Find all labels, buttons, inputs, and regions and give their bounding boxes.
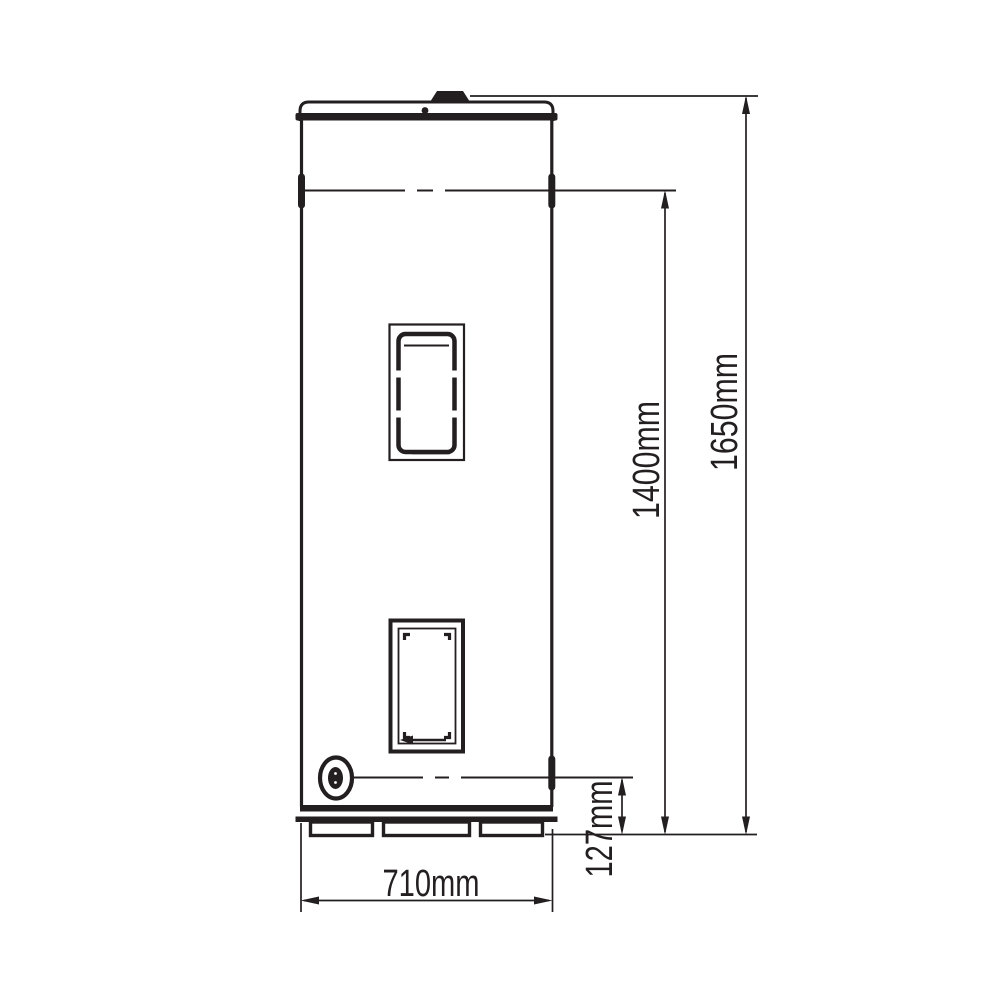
dim-label-base-width: 710mm (383, 863, 480, 905)
dim-label-upper-connection-height: 1400mm (626, 401, 668, 519)
dim-label-drain-height: 127mm (579, 781, 621, 878)
tank-top-seam (296, 113, 558, 121)
cylinder-dimension-diagram: 710mm 127mm 1400mm 1650mm (0, 0, 1000, 1000)
drain-cock-highlight (334, 781, 337, 784)
panel-notch (449, 371, 460, 378)
top-boss-fitting-icon (430, 91, 470, 102)
panel-notch (393, 411, 404, 418)
drawing-background (0, 0, 1000, 1000)
seam-stud-icon (422, 107, 429, 114)
technical-drawing-canvas: 710mm 127mm 1400mm 1650mm (0, 0, 1000, 1000)
panel-notch (449, 411, 460, 418)
base-band-upper (300, 805, 553, 812)
drain-cock (320, 758, 352, 799)
panel-notch (393, 371, 404, 378)
dim-label-overall-height: 1650mm (704, 353, 746, 471)
drain-cock-highlight (334, 772, 337, 775)
drain-cock-inner-icon (328, 767, 343, 789)
